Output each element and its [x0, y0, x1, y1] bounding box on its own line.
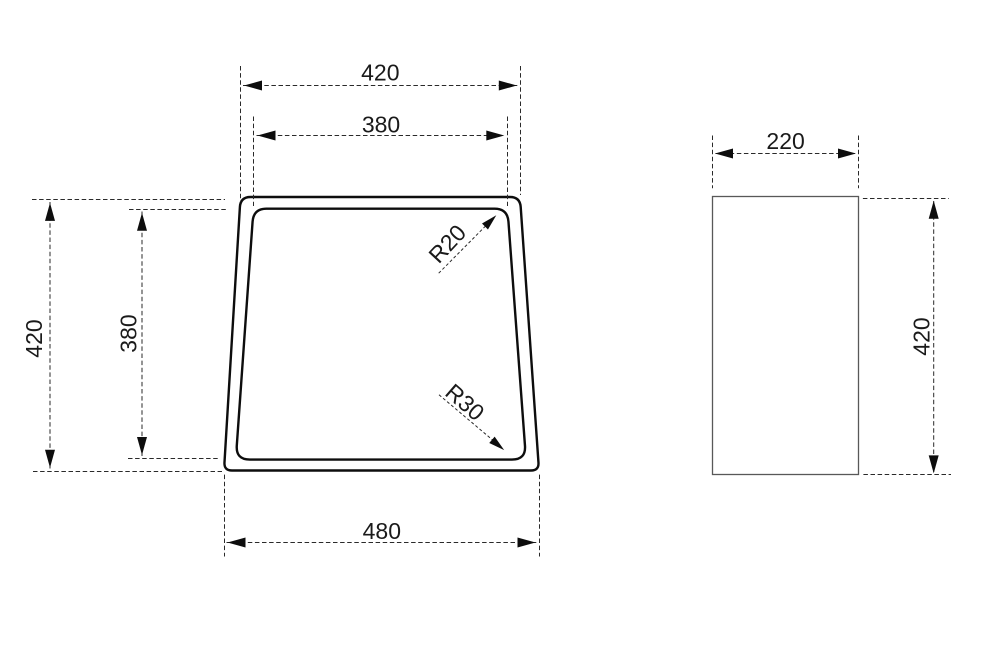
svg-text:380: 380	[362, 112, 400, 138]
svg-text:220: 220	[766, 128, 804, 154]
svg-text:420: 420	[361, 60, 399, 86]
svg-text:480: 480	[363, 518, 401, 544]
svg-text:420: 420	[908, 317, 934, 355]
svg-text:420: 420	[21, 319, 47, 357]
svg-text:380: 380	[116, 314, 142, 352]
